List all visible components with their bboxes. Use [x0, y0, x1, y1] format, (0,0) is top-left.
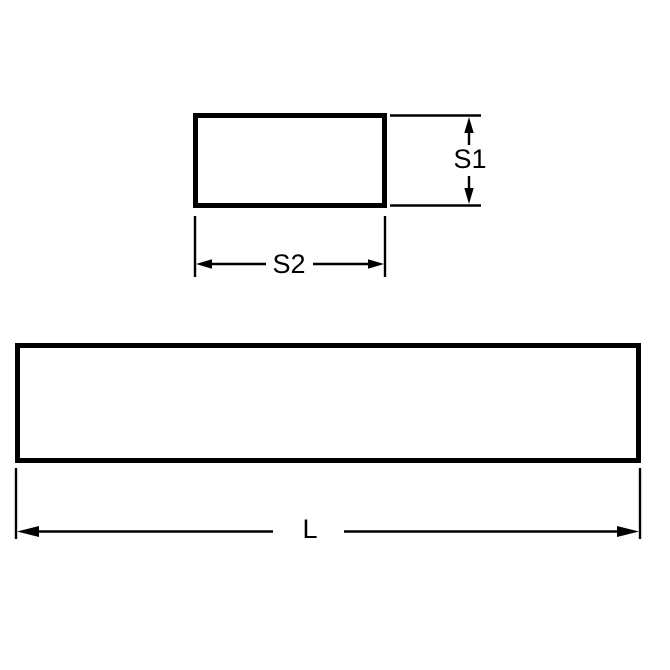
s1-arrowhead-down-icon	[464, 188, 473, 204]
l-label: L	[302, 514, 317, 544]
side-view: L	[16, 346, 640, 545]
s2-arrowhead-left-icon	[196, 259, 212, 268]
s1-arrowhead-up-icon	[464, 117, 473, 133]
dimension-s1: S1	[390, 116, 487, 206]
cross-section-rectangle	[196, 116, 385, 206]
l-arrowhead-left-icon	[17, 526, 39, 537]
technical-drawing: S1 S2 L	[0, 0, 670, 670]
s2-arrowhead-right-icon	[368, 259, 384, 268]
dimension-l: L	[16, 468, 640, 544]
dimension-s2: S2	[195, 216, 385, 279]
s1-label: S1	[453, 144, 486, 174]
l-arrowhead-right-icon	[617, 526, 639, 537]
s2-label: S2	[272, 249, 305, 279]
cross-section-view: S1 S2	[195, 116, 487, 280]
side-view-rectangle	[18, 346, 639, 461]
